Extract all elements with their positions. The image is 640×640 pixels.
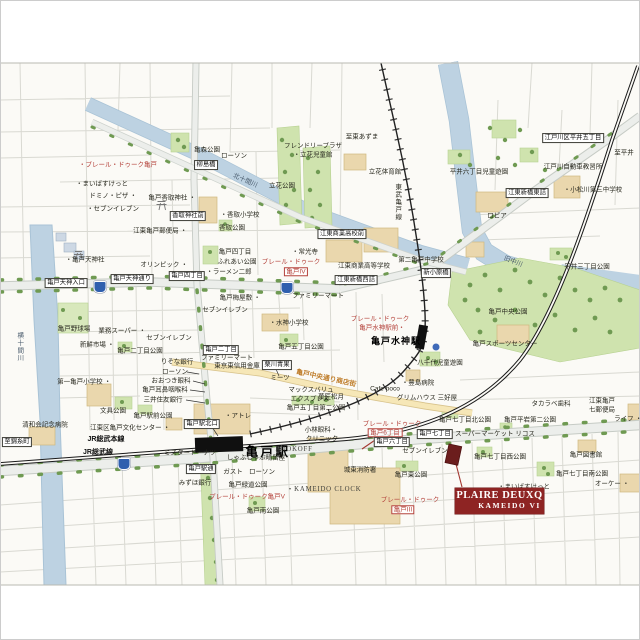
- map-label: 城東消防署: [344, 466, 377, 473]
- map-label: ・常光寺: [292, 248, 318, 255]
- map-label: 東武亀戸線: [393, 183, 400, 221]
- map-label: 栗川青果: [262, 360, 292, 370]
- map-label: プレール・ドゥーク: [363, 420, 422, 427]
- map-label: 亀戸野球場: [58, 325, 91, 332]
- map-label: ・プレール・ドゥーク亀戸: [79, 161, 157, 168]
- map-label: プレール・ドゥーク: [351, 315, 410, 322]
- map-label: 七郵便局: [589, 406, 615, 413]
- map-label: ・小松川第三中学校: [564, 186, 623, 193]
- map-label: タカラベ歯科: [532, 400, 571, 407]
- map-label: 平井三丁目公園: [564, 263, 610, 270]
- map-label: 業務スーパー ・: [98, 327, 145, 334]
- map-label: ガスト: [223, 468, 243, 475]
- map-label: ロピア: [487, 212, 507, 219]
- map-label: 江東亀戸: [589, 397, 615, 404]
- map-label: 江東商業高等学校: [338, 262, 390, 269]
- map-label: 江東亀戸郵便局 ・: [133, 227, 187, 234]
- map-label: 亀戸天神入口: [45, 278, 88, 288]
- map-label: ・亀戸天神社: [66, 256, 105, 263]
- map-label: オリンピック ・: [140, 261, 187, 268]
- map-label: 三井住友銀行: [144, 396, 183, 403]
- map-label: ミスタードーナツ: [164, 449, 216, 456]
- map-label: 江戸川区平井五丁目: [542, 133, 604, 143]
- map-label: 亀戸七丁目南公園: [556, 470, 608, 477]
- map-label: 八千代児童遊園: [417, 359, 463, 366]
- map-label: Cafe poco: [370, 385, 400, 392]
- map-label: 亀戸七丁目北公園: [439, 416, 491, 423]
- map-label: 亀森公園: [194, 146, 220, 153]
- map-screenshot: ローソン柳島橋北十間川亀森公園・プレール・ドゥーク亀戸・まいばすけっとドミノ・ピ…: [0, 0, 640, 640]
- map-label: クリニック: [306, 435, 339, 442]
- map-label: ローソン: [249, 468, 275, 475]
- map-label: ・立花児童館: [294, 151, 333, 158]
- route-shield-icon: [94, 281, 107, 293]
- map-label: ・アトレ: [225, 412, 251, 419]
- map-label: ローソン: [221, 152, 247, 159]
- map-label: ・KAMEIDO CLOCK: [287, 486, 362, 494]
- map-label: ローソン: [162, 368, 188, 375]
- map-label: 亀戸四丁目: [169, 271, 205, 281]
- property-badge: PLAIRE DEUXQ KAMEIDO VI: [455, 488, 544, 514]
- map-label: ・水神小学校: [270, 319, 309, 326]
- map-label: 亀戸五丁目公園: [278, 343, 324, 350]
- map-label: ミーツ: [270, 374, 289, 381]
- map-label: 亀戸天神通り: [111, 274, 154, 284]
- map-label: 立花公園: [269, 182, 295, 189]
- map-label: ファミリーマート: [292, 292, 344, 299]
- map-label: 江東区亀戸文化センター ・: [90, 424, 170, 431]
- map-label: BOOKOFF: [275, 446, 312, 454]
- map-label: プレール・ドゥーク: [381, 496, 440, 503]
- map-label: 江戸川自動車教習所: [544, 163, 603, 170]
- map-label: JR総武線: [83, 449, 113, 457]
- map-label: 亀戸耳鼻咽喉科: [142, 386, 188, 393]
- map-label: セブンイレブン: [146, 334, 192, 341]
- map-label: 亀戸水神駅: [371, 336, 421, 346]
- map-label: 江東商業高校前: [317, 229, 366, 239]
- map-label: 清和会記念病院: [22, 421, 68, 428]
- map-label: 亀戸七丁目: [417, 429, 453, 439]
- map-label: グリムハウス 三好屋: [397, 394, 457, 401]
- map-label: ライフ ・: [614, 415, 640, 422]
- map-label: プレール・ドゥーク亀戸V: [209, 493, 285, 500]
- map-label: 亀戸水神駅前・: [359, 324, 405, 331]
- map-label: 旧中川: [503, 255, 524, 269]
- map-label: 北十間川: [232, 172, 259, 189]
- property-name: PLAIRE DEUXQ: [455, 490, 544, 501]
- map-label: 亀戸五丁目第二公園: [287, 404, 346, 411]
- map-label: 亀戸図書館: [570, 451, 603, 458]
- map-label: 香取公園: [219, 224, 245, 231]
- property-subname: KAMEIDO VI: [455, 501, 544, 510]
- map-label: 亀戸二丁目公園: [117, 347, 163, 354]
- map-label: 小林眼科・: [305, 426, 338, 433]
- map-label: 亀戸III: [391, 505, 414, 514]
- map-label: ・まいばすけっと: [76, 180, 128, 187]
- map-label: フレンドリープラザ: [284, 142, 342, 149]
- map-label: セブンイレブン: [402, 447, 448, 454]
- map-label: 柳島橋: [194, 160, 218, 170]
- map-label: セブンイレブン: [202, 306, 248, 313]
- map-label: 新鮮市場 ・: [80, 341, 114, 348]
- map-label: プレール・ドゥーク: [262, 258, 321, 265]
- route-shield-icon: [281, 282, 294, 294]
- map-label: 文具公園: [100, 407, 126, 414]
- map-label: ファミリーマート: [201, 354, 253, 361]
- map-label: 亀戸駅前公園: [134, 412, 173, 419]
- map-label: 至東あずま: [346, 133, 379, 140]
- map-label: 横十間川: [15, 332, 22, 362]
- map-label: 至平井: [614, 149, 634, 156]
- map-label: ふれあい公園: [218, 258, 257, 265]
- map-label: 亀戸スポーツセンター: [473, 340, 538, 347]
- map-label: おおつき眼科: [152, 377, 191, 384]
- map-label: 亀戸駅北口: [184, 419, 220, 429]
- map-label: 菓匠松月: [318, 393, 344, 400]
- map-label: 平井六丁目児童遊園: [450, 168, 509, 175]
- map-label: りそな銀行: [161, 358, 194, 365]
- map-label: 新小原橋: [421, 268, 451, 278]
- map-label: 亀戸香取神社 ・: [148, 194, 195, 201]
- map-label: しゃぶしゃぶ晴留屋: [227, 454, 286, 461]
- map-label: ・セブンイレブン: [87, 205, 139, 212]
- map-label: スーパーマーケット リコス: [455, 430, 535, 437]
- map-label: 亀戸梅屋敷 ・: [220, 294, 261, 301]
- map-label: ・香取小学校: [221, 211, 260, 218]
- map-label: 亀戸南公園: [247, 507, 280, 514]
- map-label: 第二亀戸中学校: [398, 256, 444, 263]
- map-label: 亀戸駅通: [186, 464, 216, 474]
- map-label: 亀戸中央公園: [489, 308, 528, 315]
- map-label: 立花体育館: [369, 168, 402, 175]
- map-label: 香取神社前: [170, 211, 206, 221]
- map-label: ・ラーメン二郎: [206, 268, 251, 275]
- map-label: みずほ銀行: [179, 479, 212, 486]
- map-labels-layer: ローソン柳島橋北十間川亀森公園・プレール・ドゥーク亀戸・まいばすけっとドミノ・ピ…: [0, 0, 640, 640]
- map-label: 亀戸六丁目: [374, 437, 410, 447]
- map-label: オーケー ・: [595, 480, 629, 487]
- map-label: 東京東信用金庫: [214, 362, 260, 369]
- route-shield-icon: [118, 458, 131, 470]
- map-label: 亀戸四丁目: [219, 248, 252, 255]
- map-label: 至錦糸町: [2, 437, 32, 447]
- map-label: 亀戸緑道公園: [229, 481, 268, 488]
- map-label: 亀戸IV: [284, 267, 308, 276]
- map-label: 亀戸七丁目西公園: [474, 453, 526, 460]
- map-label: ・豊島病院: [402, 379, 435, 386]
- map-label: 江東新橋西詰: [335, 275, 378, 285]
- map-label: 亀戸平岩第二公園: [504, 416, 556, 423]
- map-label: ドミノ・ピザ ・: [89, 192, 136, 199]
- map-label: JR総武本線: [88, 436, 125, 444]
- map-label: 第一亀戸小学校 ・: [57, 378, 111, 385]
- map-label: 亀戸東公園: [395, 471, 428, 478]
- map-label: 江東新橋東詰: [506, 188, 549, 198]
